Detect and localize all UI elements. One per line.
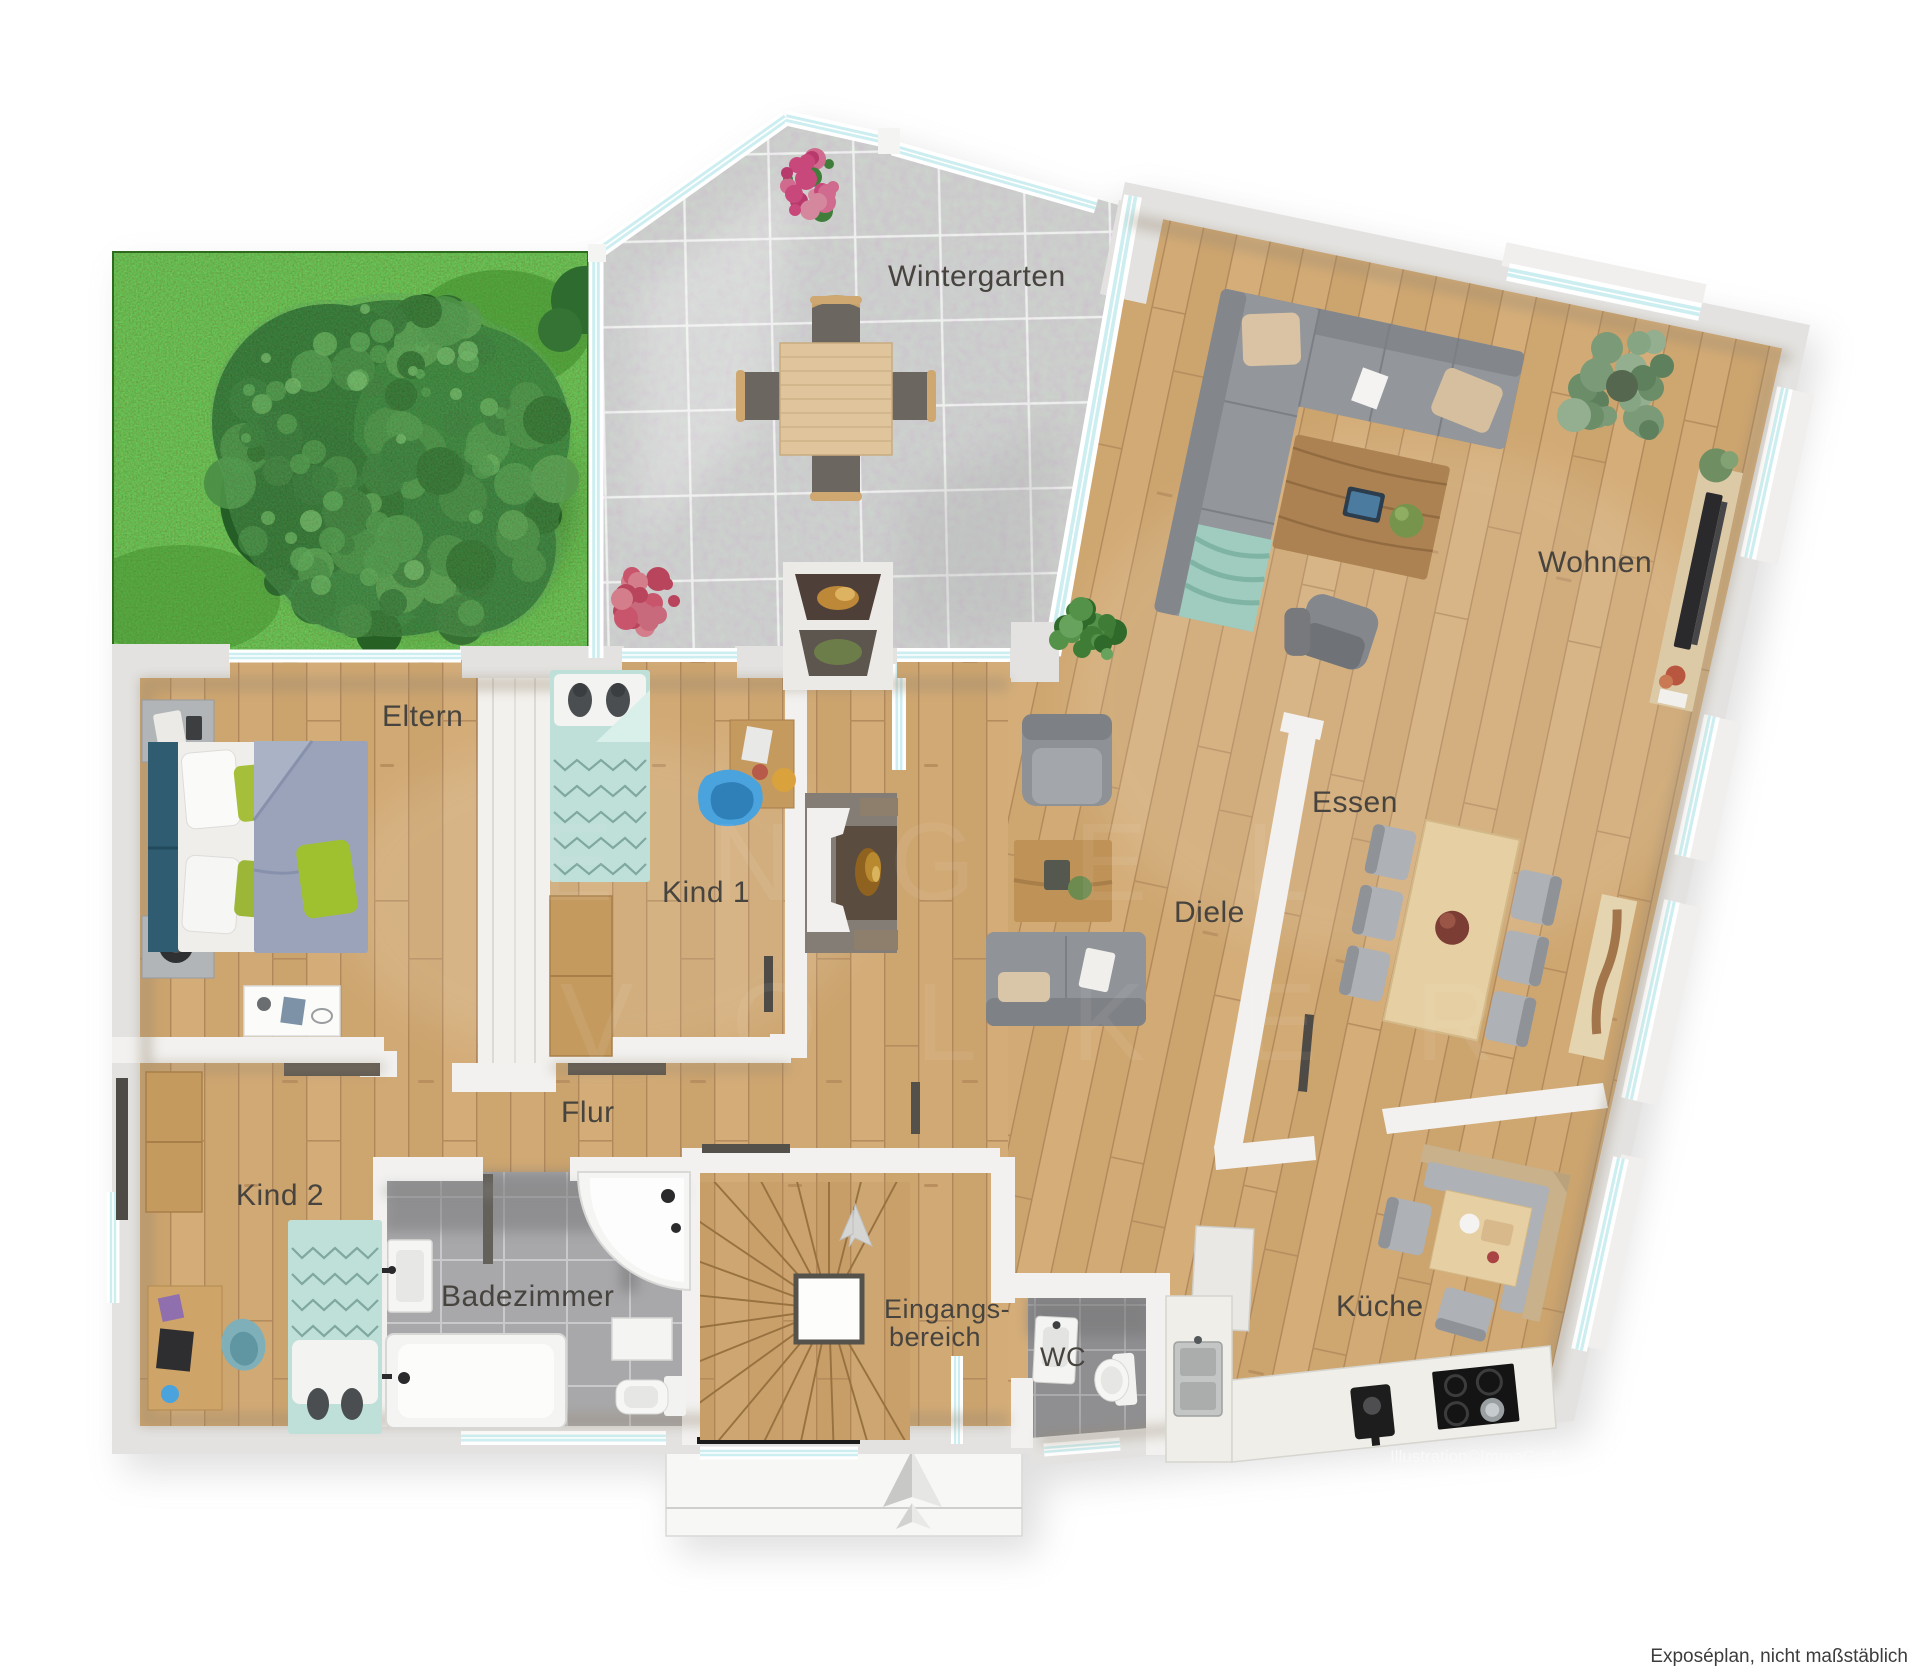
svg-text:WC: WC — [1040, 1342, 1086, 1372]
svg-text:Kind 2: Kind 2 — [236, 1179, 324, 1212]
svg-text:bereich: bereich — [889, 1322, 981, 1352]
svg-text:Wintergarten: Wintergarten — [888, 260, 1066, 293]
svg-text:V O L K E R: V O L K E R — [560, 961, 1529, 1084]
svg-text:Illustration©ImmoGrafik: Illustration©ImmoGrafik — [1390, 1447, 1568, 1466]
svg-text:Eltern: Eltern — [382, 700, 463, 733]
svg-text:E N G E L: E N G E L — [540, 801, 1341, 924]
svg-text:Eingangs-: Eingangs- — [884, 1294, 1010, 1324]
svg-text:Wohnen: Wohnen — [1538, 546, 1652, 579]
svg-text:Küche: Küche — [1336, 1290, 1424, 1323]
svg-text:Badezimmer: Badezimmer — [441, 1280, 614, 1313]
svg-text:Exposéplan, nicht maßstäblich: Exposéplan, nicht maßstäblich — [1650, 1646, 1908, 1667]
svg-text:Flur: Flur — [561, 1096, 615, 1129]
